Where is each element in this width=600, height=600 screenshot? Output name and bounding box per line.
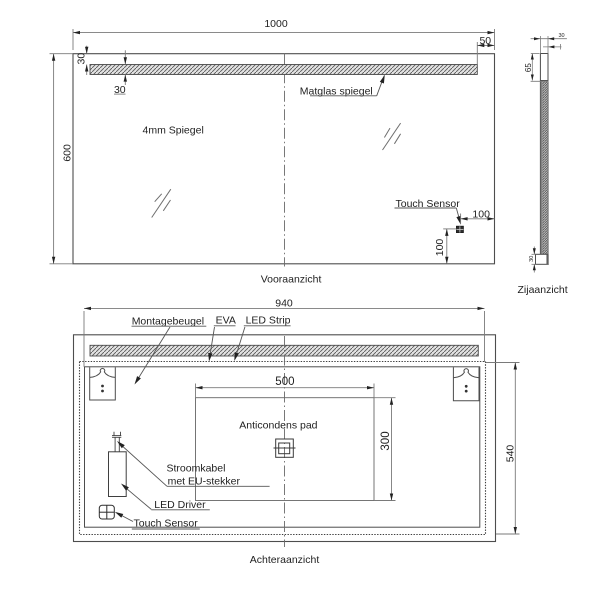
svg-text:Vooraanzicht: Vooraanzicht <box>261 274 322 286</box>
svg-text:Touch Sensor: Touch Sensor <box>134 518 199 530</box>
svg-text:65: 65 <box>524 63 533 72</box>
svg-text:LED Strip: LED Strip <box>246 315 291 327</box>
svg-text:940: 940 <box>275 298 293 310</box>
svg-text:600: 600 <box>62 144 74 162</box>
svg-text:100: 100 <box>434 239 446 257</box>
svg-text:LED Driver: LED Driver <box>154 499 206 511</box>
svg-text:Anticondens pad: Anticondens pad <box>239 419 317 431</box>
svg-text:30: 30 <box>114 84 126 96</box>
svg-text:Achteraanzicht: Achteraanzicht <box>250 554 320 566</box>
svg-text:50: 50 <box>479 35 491 47</box>
svg-text:1000: 1000 <box>264 18 288 30</box>
svg-text:4mm Spiegel: 4mm Spiegel <box>143 125 204 137</box>
svg-text:EVA: EVA <box>216 315 236 327</box>
svg-text:500: 500 <box>275 376 294 388</box>
svg-text:30: 30 <box>76 53 88 65</box>
svg-text:Stroomkabel: Stroomkabel <box>167 463 226 475</box>
svg-text:met EU-stekker: met EU-stekker <box>168 475 241 487</box>
svg-text:Zijaanzicht: Zijaanzicht <box>518 284 568 296</box>
svg-text:540: 540 <box>504 445 516 463</box>
svg-text:30: 30 <box>529 256 535 262</box>
svg-text:30: 30 <box>559 33 565 39</box>
svg-text:300: 300 <box>380 431 392 450</box>
svg-text:100: 100 <box>472 208 490 220</box>
